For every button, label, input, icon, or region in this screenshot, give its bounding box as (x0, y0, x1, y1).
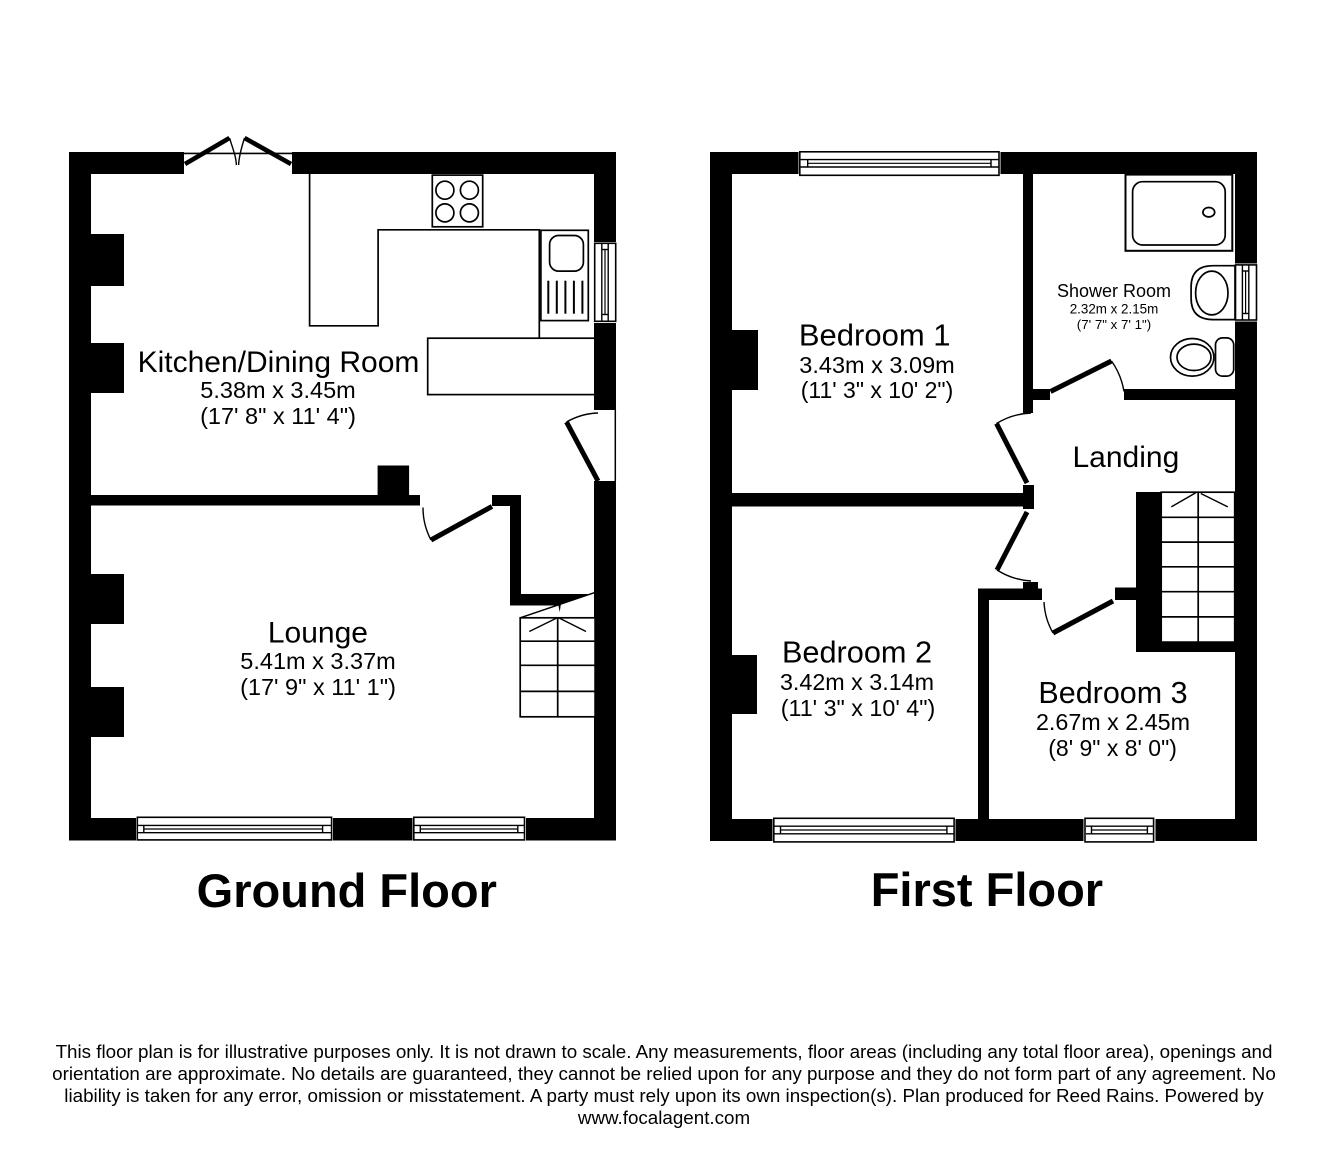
svg-text:Bedroom 1: Bedroom 1 (799, 318, 951, 353)
svg-text:(8' 9" x 8' 0"): (8' 9" x 8' 0") (1048, 735, 1177, 761)
svg-text:www.focalagent.com: www.focalagent.com (577, 1107, 750, 1128)
svg-text:Ground Floor: Ground Floor (197, 864, 497, 917)
svg-text:3.43m x 3.09m: 3.43m x 3.09m (799, 352, 954, 378)
svg-text:Bedroom 3: Bedroom 3 (1038, 676, 1187, 710)
svg-text:5.41m x 3.37m: 5.41m x 3.37m (240, 648, 395, 674)
svg-text:Landing: Landing (1073, 441, 1180, 474)
svg-text:3.42m x 3.14m: 3.42m x 3.14m (780, 669, 934, 695)
svg-text:2.32m x 2.15m: 2.32m x 2.15m (1070, 302, 1159, 317)
svg-text:orientation are approximate. N: orientation are approximate. No details … (52, 1063, 1276, 1084)
svg-text:2.67m x 2.45m: 2.67m x 2.45m (1036, 709, 1190, 735)
svg-text:Kitchen/Dining Room: Kitchen/Dining Room (138, 346, 420, 379)
svg-text:First Floor: First Floor (871, 863, 1103, 916)
svg-text:(7' 7" x 7' 1"): (7' 7" x 7' 1") (1077, 317, 1151, 332)
svg-text:Shower Room: Shower Room (1057, 281, 1171, 301)
svg-text:(11' 3" x 10' 2"): (11' 3" x 10' 2") (801, 377, 954, 403)
svg-text:(17' 8" x 11' 4"): (17' 8" x 11' 4") (200, 403, 356, 429)
svg-text:5.38m x 3.45m: 5.38m x 3.45m (200, 377, 355, 403)
svg-text:(17' 9" x 11' 1"): (17' 9" x 11' 1") (240, 674, 396, 700)
svg-text:This floor plan is for illustr: This floor plan is for illustrative purp… (56, 1041, 1273, 1062)
svg-text:Lounge: Lounge (268, 616, 368, 649)
svg-text:Bedroom 2: Bedroom 2 (782, 634, 932, 669)
svg-text:(11' 3" x 10' 4"): (11' 3" x 10' 4") (781, 695, 936, 721)
svg-text:liability is taken for any err: liability is taken for any error, omissi… (64, 1085, 1264, 1106)
